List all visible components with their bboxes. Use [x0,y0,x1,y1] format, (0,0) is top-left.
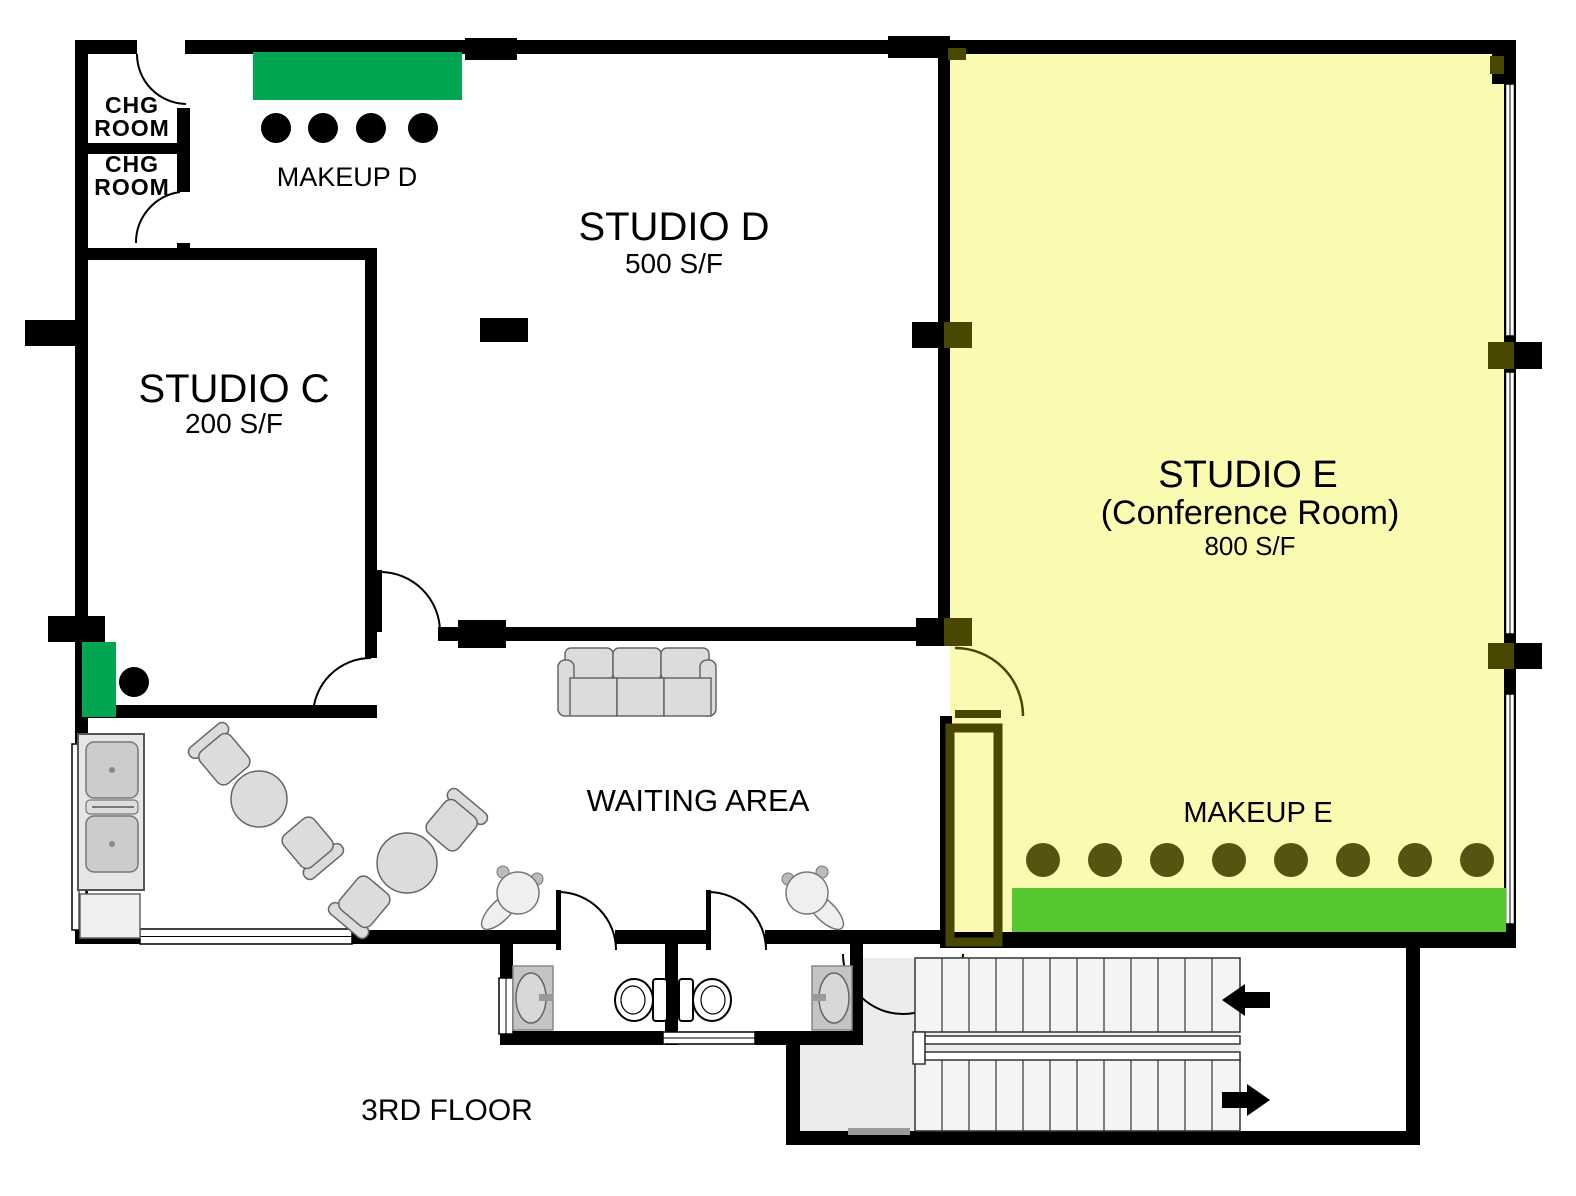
makeup-c-counter [82,642,116,717]
studio-e-title: STUDIO E [1158,454,1337,496]
makeup-e-counter [1012,888,1506,932]
makeup-chair-dot [1212,843,1246,877]
stair-door-sill [848,1128,910,1135]
makeup-chair-dot [119,667,149,697]
makeup-chair-dot [261,113,291,143]
studio-e-area: 800 S/F [1204,531,1295,561]
window-studio-e-east-1 [1506,84,1515,336]
kitchenette [78,734,144,938]
makeup-d-station [253,52,462,143]
chg-room-2-label-line2: ROOM [94,174,170,200]
floor-plan-page: CHG ROOM CHG ROOM MAKEUP D STUDIO D 500 … [0,0,1576,1196]
stair-landing [1240,958,1406,1131]
makeup-chair-dot [1150,843,1184,877]
bathroom-sink [513,966,553,1030]
floor-label: 3RD FLOOR [361,1094,533,1127]
toilet [679,979,731,1021]
makeup-chair-dot [1026,843,1060,877]
window-studio-e-east-2 [1506,372,1515,634]
chg-room-1-label-line2: ROOM [94,115,170,141]
makeup-chair-dot [408,113,438,143]
makeup-chair-dot [1460,843,1494,877]
window-bathroom-west [499,978,513,1034]
studio-c-area: 200 S/F [185,408,283,439]
window-bathroom-south [663,1032,755,1044]
makeup-chair-dot [1398,843,1432,877]
makeup-d-counter [253,52,462,100]
kitchen-cabinet [80,894,140,938]
makeup-d-label: MAKEUP D [277,162,418,192]
faucet-icon [812,994,826,1001]
window-studio-e-east-3 [1506,694,1515,924]
round-table-2 [377,833,437,893]
makeup-chair-dot [1274,843,1308,877]
makeup-chair-dot [308,113,338,143]
round-table-1 [231,771,287,827]
waiting-area-label: WAITING AREA [587,783,810,818]
makeup-e-label: MAKEUP E [1183,797,1332,829]
drain-icon [109,841,115,847]
sofa [558,648,716,716]
bathroom-sink [812,966,852,1030]
makeup-chair-dot [1088,843,1122,877]
studio-d-area: 500 S/F [625,248,723,279]
makeup-chair-dot [356,113,386,143]
drain-icon [109,767,115,773]
toilet [615,979,667,1021]
studio-d-title: STUDIO D [578,205,769,249]
makeup-chair-dot [1336,843,1370,877]
studio-e-subtitle: (Conference Room) [1101,494,1400,532]
studio-c-title: STUDIO C [138,367,329,411]
floor-plan-canvas: CHG ROOM CHG ROOM MAKEUP D STUDIO D 500 … [0,0,1576,1196]
window-waiting-south [140,929,352,944]
faucet-icon [539,994,553,1001]
